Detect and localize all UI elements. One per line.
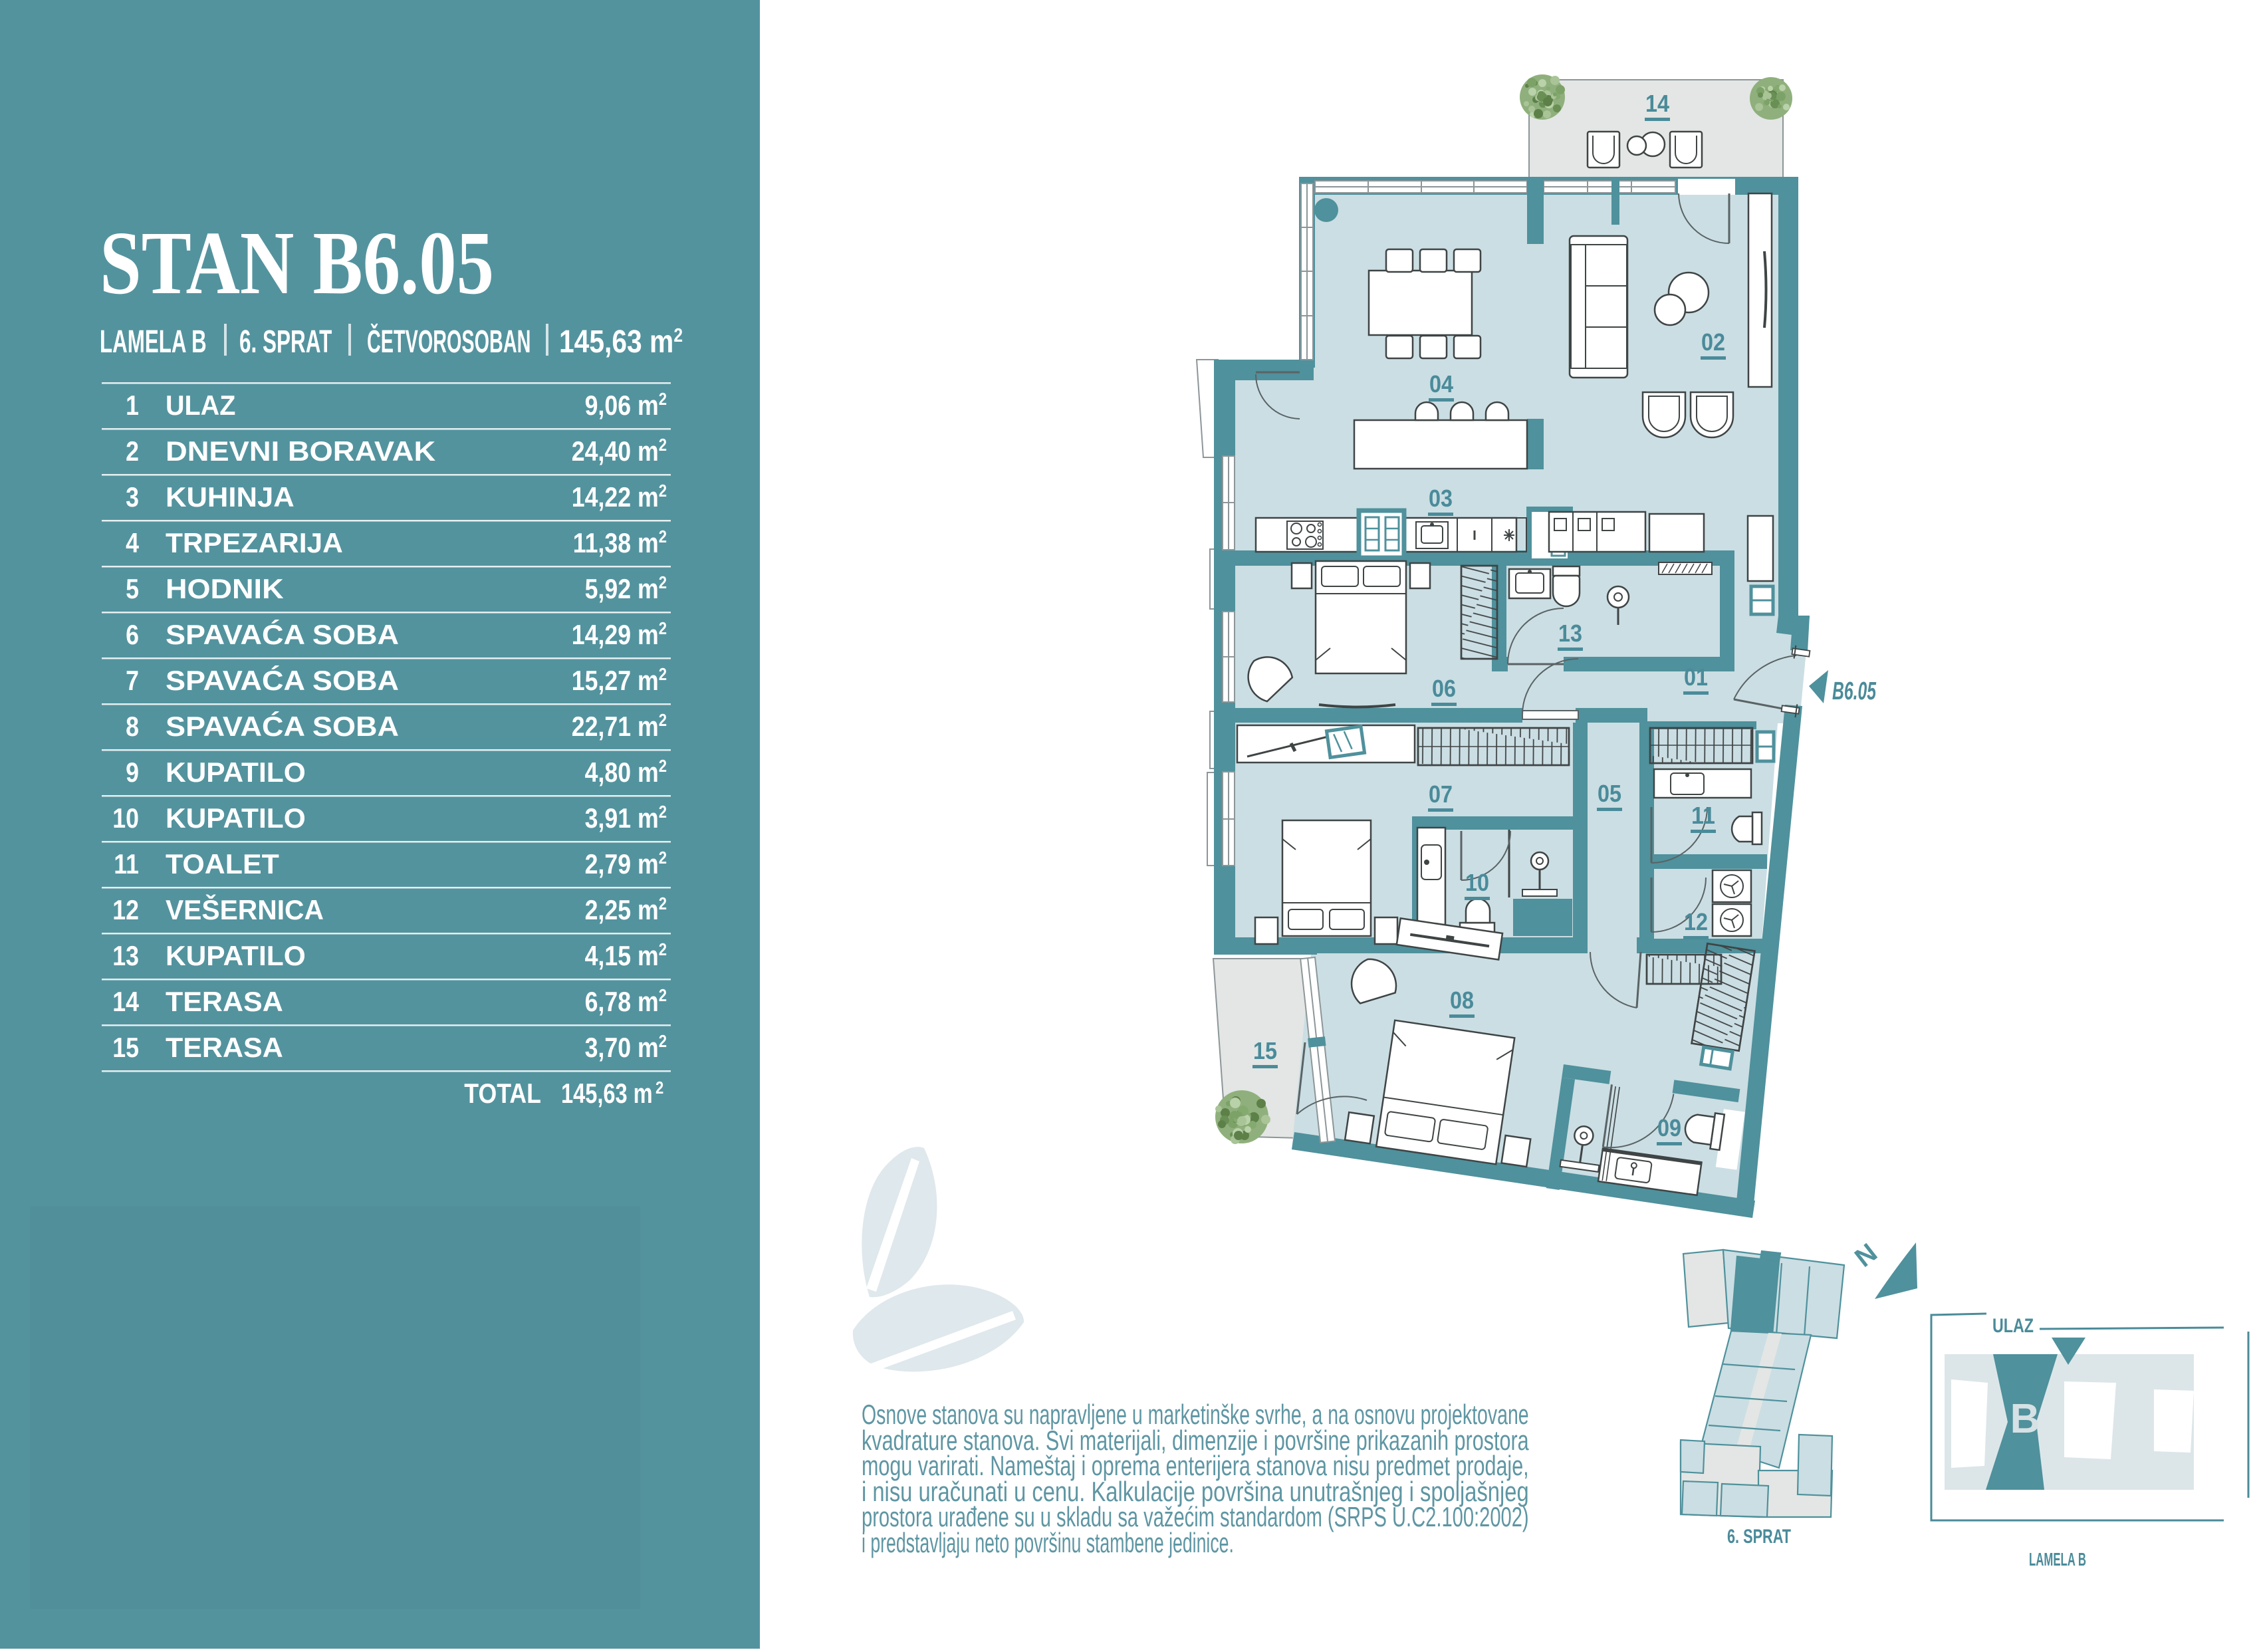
svg-text:24,40 m2: 24,40 m2 xyxy=(572,435,667,467)
svg-text:DNEVNI BORAVAK: DNEVNI BORAVAK xyxy=(166,436,435,467)
svg-text:3,91 m2: 3,91 m2 xyxy=(585,802,667,834)
svg-text:8: 8 xyxy=(126,711,139,742)
svg-text:5: 5 xyxy=(126,574,139,604)
svg-text:145,63 m: 145,63 m xyxy=(561,1078,653,1109)
svg-text:KUHINJA: KUHINJA xyxy=(166,482,295,513)
svg-text:6,78 m2: 6,78 m2 xyxy=(585,986,667,1017)
svg-text:6. SPRAT: 6. SPRAT xyxy=(1727,1526,1791,1548)
svg-text:13: 13 xyxy=(1558,620,1582,647)
svg-text:4: 4 xyxy=(126,528,139,558)
svg-text:13: 13 xyxy=(112,941,139,971)
svg-text:2,79 m2: 2,79 m2 xyxy=(585,848,667,880)
svg-text:ČETVOROSOBAN: ČETVOROSOBAN xyxy=(367,323,531,360)
svg-text:14: 14 xyxy=(112,987,139,1017)
svg-text:02: 02 xyxy=(1701,328,1725,356)
svg-text:05: 05 xyxy=(1598,780,1621,807)
svg-text:TRPEZARIJA: TRPEZARIJA xyxy=(166,528,343,558)
svg-text:11,38 m2: 11,38 m2 xyxy=(573,527,667,558)
svg-text:7: 7 xyxy=(126,665,139,696)
svg-text:KUPATILO: KUPATILO xyxy=(166,757,306,788)
svg-text:6. SPRAT: 6. SPRAT xyxy=(239,324,332,360)
svg-text:B: B xyxy=(2010,1396,2040,1442)
svg-text:14,29 m2: 14,29 m2 xyxy=(572,619,667,650)
svg-text:22,71 m2: 22,71 m2 xyxy=(572,711,667,742)
svg-text:2: 2 xyxy=(126,436,139,467)
svg-text:08: 08 xyxy=(1450,987,1474,1014)
svg-text:5,92 m2: 5,92 m2 xyxy=(585,573,667,604)
svg-text:06: 06 xyxy=(1432,675,1456,702)
svg-text:1: 1 xyxy=(126,390,139,421)
svg-text:KUPATILO: KUPATILO xyxy=(166,803,306,834)
svg-text:SPAVAĆA SOBA: SPAVAĆA SOBA xyxy=(166,711,399,742)
svg-text:15: 15 xyxy=(112,1032,139,1063)
svg-text:LAMELA B: LAMELA B xyxy=(100,324,207,360)
svg-text:HODNIK: HODNIK xyxy=(166,574,284,604)
svg-text:09: 09 xyxy=(1657,1114,1681,1141)
svg-text:4,80 m2: 4,80 m2 xyxy=(585,757,667,788)
svg-text:SPAVAĆA SOBA: SPAVAĆA SOBA xyxy=(166,665,399,696)
svg-text:14: 14 xyxy=(1645,90,1669,117)
svg-text:01: 01 xyxy=(1684,663,1708,691)
svg-text:SPAVAĆA SOBA: SPAVAĆA SOBA xyxy=(166,619,399,650)
svg-text:07: 07 xyxy=(1429,780,1453,808)
svg-text:i predstavljaju neto površinu: i predstavljaju neto površinu stambene j… xyxy=(862,1528,1234,1559)
svg-text:12: 12 xyxy=(1684,908,1708,935)
svg-text:B6.05: B6.05 xyxy=(1832,677,1877,705)
svg-text:14,22 m2: 14,22 m2 xyxy=(572,481,667,513)
svg-text:ULAZ: ULAZ xyxy=(166,390,235,421)
svg-text:04: 04 xyxy=(1429,370,1453,398)
svg-text:LAMELA B: LAMELA B xyxy=(2029,1549,2086,1570)
svg-text:10: 10 xyxy=(1465,869,1489,896)
svg-text:11: 11 xyxy=(1691,802,1715,829)
svg-text:12: 12 xyxy=(112,895,139,925)
svg-text:6: 6 xyxy=(126,620,139,650)
svg-text:TERASA: TERASA xyxy=(166,1032,283,1063)
svg-text:TOALET: TOALET xyxy=(166,849,279,880)
svg-text:15,27 m2: 15,27 m2 xyxy=(572,665,667,696)
svg-text:STAN B6.05: STAN B6.05 xyxy=(100,213,494,313)
svg-text:ULAZ: ULAZ xyxy=(1992,1315,2034,1337)
svg-text:2: 2 xyxy=(655,1078,663,1098)
svg-text:2,25 m2: 2,25 m2 xyxy=(585,894,667,925)
svg-text:9,06 m2: 9,06 m2 xyxy=(585,390,667,421)
svg-text:10: 10 xyxy=(112,803,139,834)
svg-text:03: 03 xyxy=(1429,485,1453,512)
svg-text:3,70 m2: 3,70 m2 xyxy=(585,1032,667,1063)
svg-text:3: 3 xyxy=(126,482,139,513)
svg-text:4,15 m2: 4,15 m2 xyxy=(585,940,667,971)
svg-text:TERASA: TERASA xyxy=(166,987,283,1017)
svg-text:KUPATILO: KUPATILO xyxy=(166,941,306,971)
svg-text:VEŠERNICA: VEŠERNICA xyxy=(166,893,324,925)
svg-text:15: 15 xyxy=(1253,1037,1277,1064)
svg-text:145,63 m2: 145,63 m2 xyxy=(559,324,683,360)
svg-text:TOTAL: TOTAL xyxy=(464,1078,541,1109)
svg-text:11: 11 xyxy=(114,849,139,880)
svg-text:9: 9 xyxy=(126,757,139,788)
